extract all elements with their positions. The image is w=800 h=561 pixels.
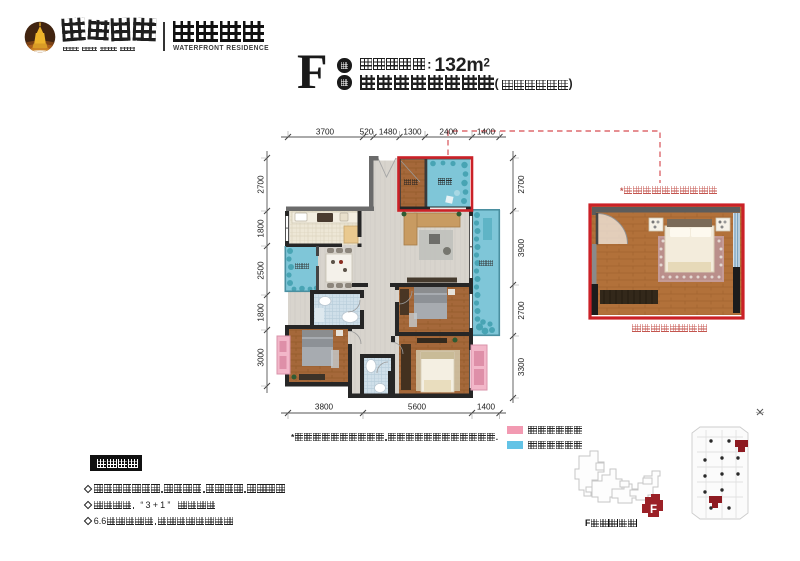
svg-text:3900: 3900 bbox=[517, 238, 526, 257]
svg-text:3000: 3000 bbox=[257, 348, 266, 367]
svg-text:1400: 1400 bbox=[477, 403, 496, 412]
svg-text:3700: 3700 bbox=[316, 128, 335, 137]
svg-text:1400: 1400 bbox=[477, 128, 496, 137]
svg-text:2500: 2500 bbox=[257, 261, 266, 280]
svg-text:1480: 1480 bbox=[379, 128, 398, 137]
svg-text:1800: 1800 bbox=[257, 303, 266, 322]
svg-text:3300: 3300 bbox=[517, 357, 526, 376]
svg-text:1800: 1800 bbox=[257, 219, 266, 238]
svg-text:2400: 2400 bbox=[439, 128, 458, 137]
svg-text:5600: 5600 bbox=[408, 403, 427, 412]
svg-text:F: F bbox=[650, 504, 657, 516]
svg-text:2700: 2700 bbox=[517, 301, 526, 320]
svg-text:1300: 1300 bbox=[403, 128, 422, 137]
svg-text:2700: 2700 bbox=[517, 175, 526, 194]
svg-text:520: 520 bbox=[360, 128, 374, 137]
svg-text:3800: 3800 bbox=[315, 403, 334, 412]
svg-text:2700: 2700 bbox=[257, 175, 266, 194]
